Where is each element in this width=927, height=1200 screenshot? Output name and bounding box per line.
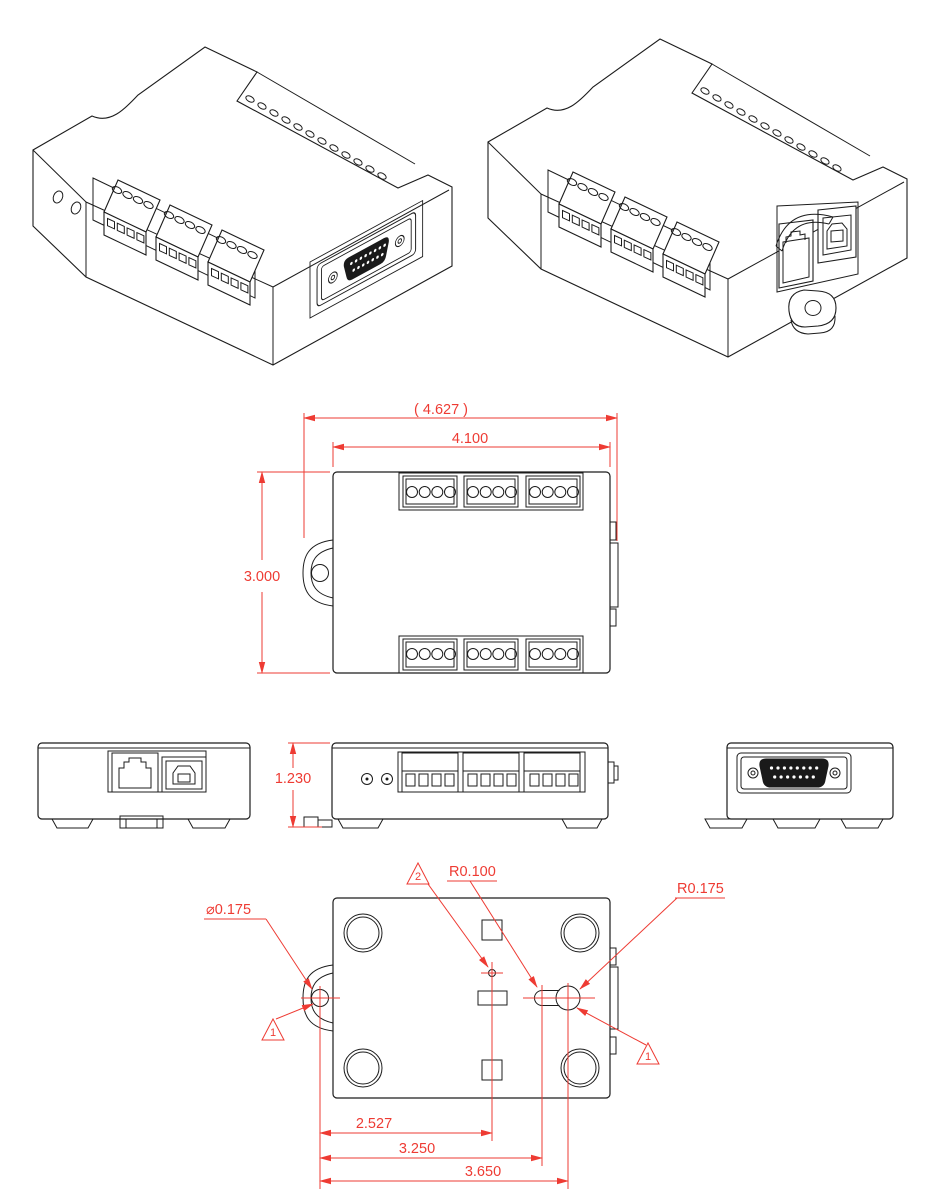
dim-height: 1.230	[275, 743, 330, 827]
top-terminal-strip	[399, 473, 583, 510]
dim-body-depth: 3.000	[244, 472, 330, 673]
dim-text-overall: ( 4.627 )	[414, 402, 468, 418]
dim-body-width: 4.100	[333, 431, 610, 467]
label-hole-diameter: ⌀0.175	[206, 902, 251, 918]
led-indicators	[362, 774, 393, 785]
iso-view-rear	[488, 39, 907, 357]
rj45-port-rear	[112, 753, 158, 792]
usb-b-port-rear	[162, 757, 206, 792]
callout-tab-hole-diameter: ⌀0.175	[204, 902, 312, 989]
dim-tab-to-center-hole: 2.527	[320, 1116, 492, 1133]
top-view: ( 4.627 ) 4.100 3.000	[244, 402, 618, 673]
dim-text-height: 1.230	[275, 771, 311, 787]
label-slot-radius: R0.100	[449, 864, 496, 880]
connector-view	[705, 743, 893, 828]
bottom-terminal-strip	[399, 636, 583, 673]
dim-tab-to-slot: 3.250	[320, 1141, 542, 1158]
datum-flag-left: 1	[262, 1004, 313, 1040]
drawing-canvas: ( 4.627 ) 4.100 3.000	[0, 0, 927, 1200]
dim-tab-to-keyhole: 3.650	[320, 1164, 568, 1181]
front-view: 1.230	[275, 743, 618, 828]
db15-connector-end	[737, 753, 851, 793]
dim-text-body-width: 4.100	[452, 431, 488, 447]
dim-text-3650: 3.650	[465, 1164, 501, 1180]
dim-text-2527: 2.527	[356, 1116, 392, 1132]
rj45-port	[779, 220, 813, 288]
dim-text-3250: 3.250	[399, 1141, 435, 1157]
mounting-tab-top	[303, 540, 333, 606]
front-terminal-strip	[398, 752, 585, 792]
flag-center-number: 2	[415, 871, 421, 883]
label-keyhole-radius: R0.175	[677, 881, 724, 897]
flag-right-number: 1	[645, 1051, 651, 1063]
bottom-view: 2.527 3.250 3.650 ⌀0.175 R0.100 R0.175	[204, 863, 725, 1189]
mounting-tab-iso	[789, 290, 836, 334]
rear-view	[38, 743, 250, 828]
iso-view-front	[33, 47, 452, 365]
callout-keyhole-radius: R0.175	[580, 881, 725, 989]
dim-text-body-depth: 3.000	[244, 569, 280, 585]
corner-bosses	[344, 914, 599, 1087]
flag-left-number: 1	[270, 1027, 276, 1039]
drawing-sheet: ( 4.627 ) 4.100 3.000	[0, 0, 927, 1200]
